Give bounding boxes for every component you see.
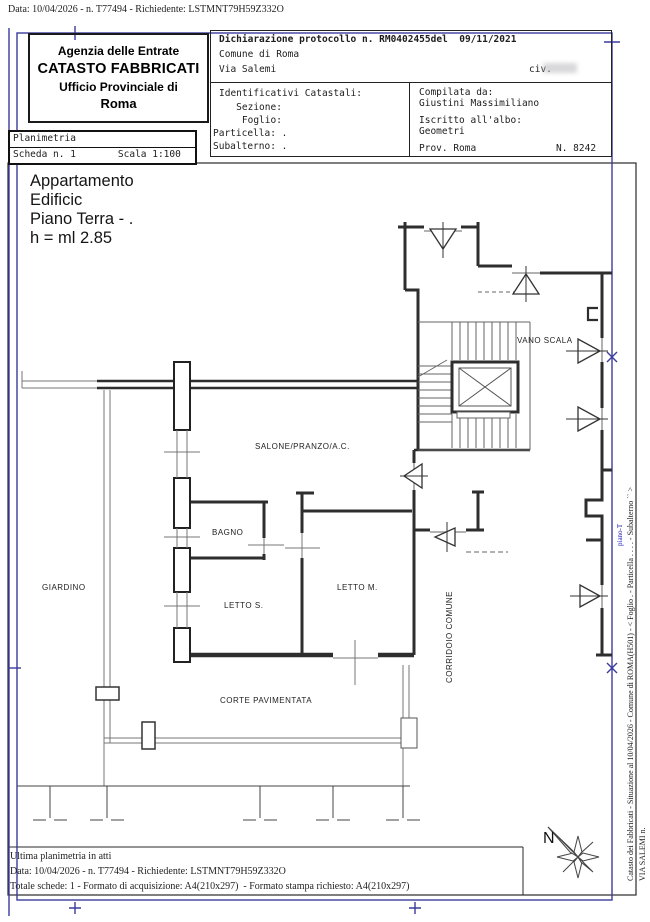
foglio-field: Foglio: (219, 115, 282, 126)
side-catasto-line: Catasto dei Fabbricati - Situazione al 1… (626, 429, 635, 881)
label-corte: CORTE PAVIMENTATA (220, 696, 312, 705)
agency-header-box: Agenzia delle Entrate CATASTO FABBRICATI… (28, 33, 209, 123)
elevator-shaft (452, 362, 518, 418)
label-corridoio: CORRIDOIO COMUNE (445, 591, 454, 683)
compass-rose (548, 827, 599, 878)
footer-ultima-line: Ultima planimetria in atti (10, 851, 111, 862)
side-blue-note: piano-T (616, 500, 624, 546)
label-salone: SALONE/PRANZO/A.C. (255, 442, 350, 451)
scale-value: Scala 1:100 (118, 149, 181, 163)
side-via-line: VIA SALEMI n. (638, 641, 647, 881)
albo-number: N. 8242 (556, 143, 596, 154)
apartment-line3: Piano Terra - . (30, 210, 134, 229)
apartment-description: Appartamento Edificic Piano Terra - . h … (30, 172, 134, 248)
label-giardino: GIARDINO (42, 583, 86, 592)
footer-totale-line: Totale schede: 1 - Formato di acquisizio… (10, 881, 410, 892)
label-letto-s: LETTO S. (224, 601, 263, 610)
declaration-divider-v (409, 82, 410, 156)
apartment-line4: h = ml 2.85 (30, 229, 134, 248)
civ-redaction (543, 63, 577, 73)
albo-label: Iscritto all'albo: (419, 115, 522, 126)
apartment-line1: Appartamento (30, 172, 134, 191)
label-bagno: BAGNO (212, 528, 243, 537)
footer-data-line: Data: 10/04/2026 - n. T77494 - Richieden… (10, 866, 286, 877)
planimetria-box: Planimetria Scheda n. 1 Scala 1:100 (8, 130, 197, 165)
declaration-box: Dichiarazione protocollo n. RM0402455del… (210, 30, 612, 157)
declaration-divider-h (211, 82, 611, 83)
planimetria-title: Planimetria (10, 132, 195, 148)
particella-field: Particella: . (213, 128, 287, 139)
apartment-line2: Edificic (30, 191, 134, 210)
agency-line4: Roma (30, 96, 207, 111)
garden-gate (96, 687, 119, 700)
scheda-number: Scheda n. 1 (13, 149, 76, 163)
compilata-name: Giustini Massimiliano (419, 98, 539, 109)
agency-line1: Agenzia delle Entrate (30, 44, 207, 58)
label-vano-scala: VANO SCALA (517, 336, 573, 345)
cadastral-floorplan-page: { "document": { "top_line": "Data: 10/04… (0, 0, 650, 922)
agency-line3: Ufficio Provinciale di (30, 80, 207, 94)
window-pillars (174, 362, 190, 662)
prov-label: Prov. Roma (419, 143, 476, 154)
catastali-title: Identificativi Catastali: (219, 88, 362, 99)
comune-line: Comune di Roma (219, 49, 299, 60)
agency-line2: CATASTO FABBRICATI (30, 61, 207, 77)
stairs (418, 292, 530, 552)
compass-north-label: N (543, 830, 555, 847)
protocol-line: Dichiarazione protocollo n. RM0402455del… (219, 34, 516, 45)
garden-boundary-lines (22, 371, 409, 786)
compilata-title: Compilata da: (419, 87, 493, 98)
court-pilaster (401, 718, 417, 748)
sezione-field: Sezione: (219, 102, 282, 113)
subalterno-field: Subalterno: . (213, 141, 287, 152)
street-line: Via Salemi (219, 64, 276, 75)
property-line (17, 786, 420, 820)
label-letto-m: LETTO M. (337, 583, 378, 592)
top-request-line: Data: 10/04/2026 - n. T77494 - Richieden… (8, 4, 284, 15)
albo-value: Geometri (419, 126, 465, 137)
garden-post (142, 722, 155, 749)
